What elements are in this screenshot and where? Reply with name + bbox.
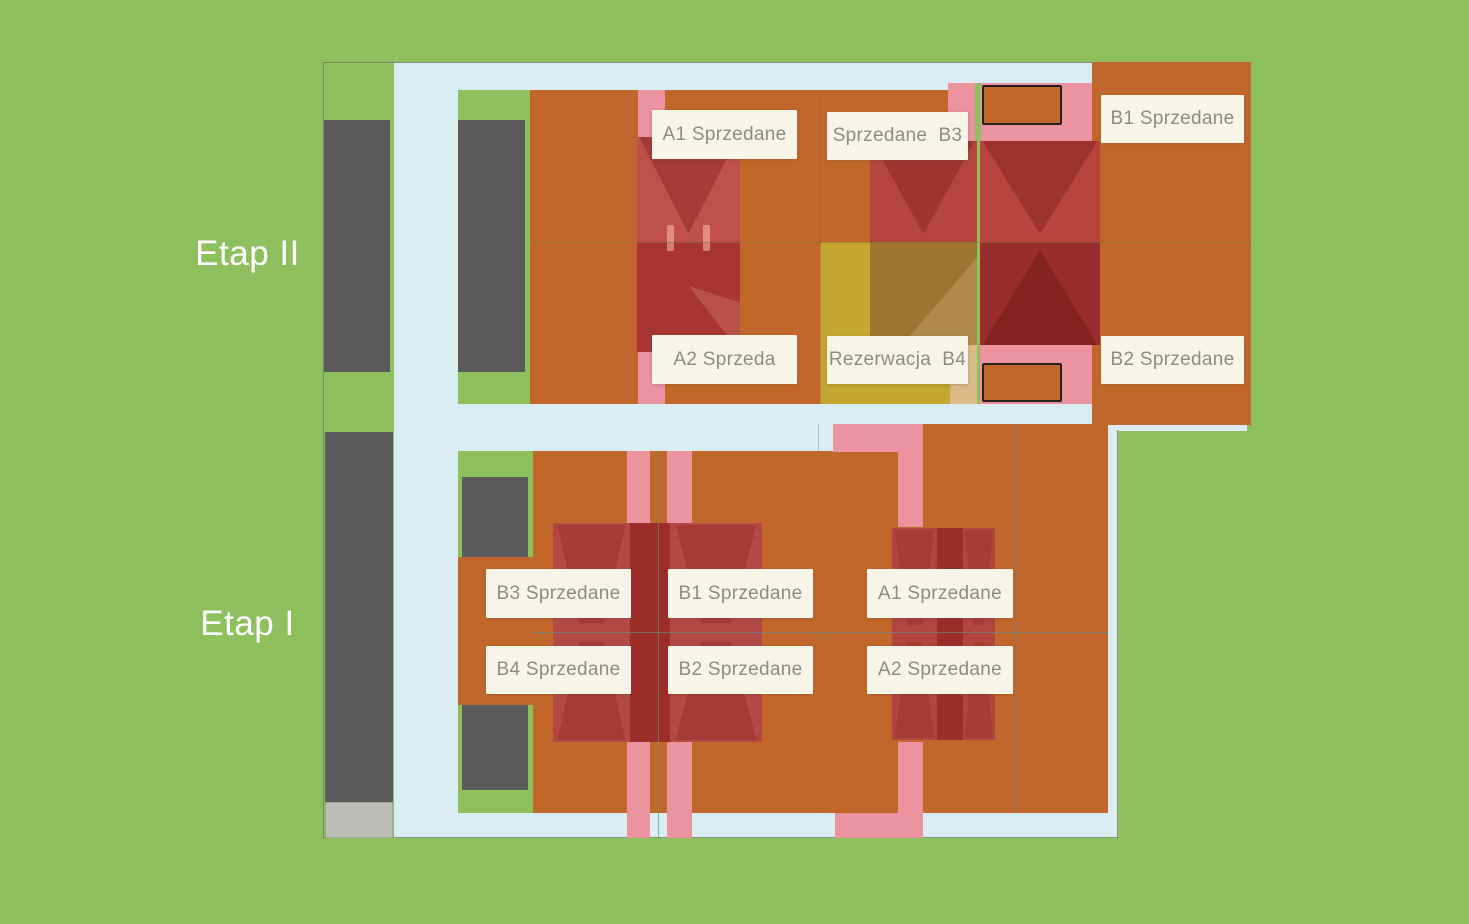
driveway-etap1-a-south-h — [835, 813, 923, 838]
driveway-etap1-a-south-v — [898, 742, 923, 813]
driveway-etap1-a-north-h — [833, 424, 923, 452]
driveway-etap1-a-north-v — [898, 452, 923, 527]
road-vertical-main — [394, 62, 458, 838]
grass-sliver-etap2-north — [975, 83, 981, 142]
garage-block-etap1-north — [462, 477, 528, 557]
plot-label-etap2-b2[interactable]: B2 Sprzedane — [1101, 336, 1244, 384]
garage-etap2-b2 — [982, 363, 1062, 402]
road-middle-horizontal — [458, 404, 1092, 424]
roof-vent — [667, 225, 674, 251]
plot-etap2-b1[interactable] — [1092, 62, 1251, 242]
phase-label-etap1: Etap I — [160, 600, 335, 648]
house-etap2-a1-a2 — [637, 137, 740, 352]
site-plan-canvas: A1 Sprzedane Sprzedane B3 B1 Sprzedane A… — [0, 0, 1469, 924]
plot-label-etap1-a2[interactable]: A2 Sprzedane — [867, 646, 1013, 694]
driveway-etap1-b-north-west — [627, 451, 650, 523]
plot-label-etap2-a1[interactable]: A1 Sprzedane — [652, 110, 797, 159]
phase-label-etap2: Etap II — [160, 230, 335, 278]
plot-label-etap2-a2[interactable]: A2 Sprzeda — [652, 335, 797, 384]
garage-block-etap1-south — [462, 705, 528, 790]
plot-etap2-b2[interactable] — [1092, 242, 1251, 425]
parking-building-etap1-cap — [325, 802, 393, 838]
terrace-etap2-b4-sliver — [950, 390, 977, 404]
plot-label-etap2-b1[interactable]: B1 Sprzedane — [1101, 95, 1244, 143]
road-middle-horizontal-left — [458, 424, 833, 451]
plot-etap1-a-cluster-west[interactable] — [818, 451, 833, 813]
road-bottom-horizontal — [394, 813, 1118, 838]
parking-building-etap1 — [325, 432, 393, 802]
plot-label-etap1-b1[interactable]: B1 Sprzedane — [668, 569, 813, 618]
plot-label-etap1-b4[interactable]: B4 Sprzedane — [486, 646, 631, 694]
plot-label-etap2-b3[interactable]: Sprzedane B3 — [827, 112, 968, 160]
driveway-etap1-b-south-east — [667, 742, 692, 838]
garage-etap2-b1 — [982, 85, 1062, 125]
driveway-etap1-b-south-west — [627, 742, 650, 838]
house-etap2-b3-b4 — [870, 141, 977, 345]
plot-label-etap1-b2[interactable]: B2 Sprzedane — [668, 646, 813, 694]
driveway-etap1-b-north-east — [667, 451, 692, 523]
plot-label-etap2-b4[interactable]: Rezerwacja B4 — [827, 336, 968, 384]
roof-vent — [703, 225, 710, 251]
house-etap1-b-semis — [553, 523, 762, 742]
house-etap1-a-semis — [892, 528, 995, 740]
parking-building-etap2-east — [458, 120, 525, 372]
road-right-vertical — [1108, 430, 1118, 813]
plot-label-etap1-b3[interactable]: B3 Sprzedane — [486, 569, 631, 618]
plot-label-etap1-a1[interactable]: A1 Sprzedane — [867, 569, 1013, 618]
house-etap2-b1-b2 — [980, 141, 1100, 345]
